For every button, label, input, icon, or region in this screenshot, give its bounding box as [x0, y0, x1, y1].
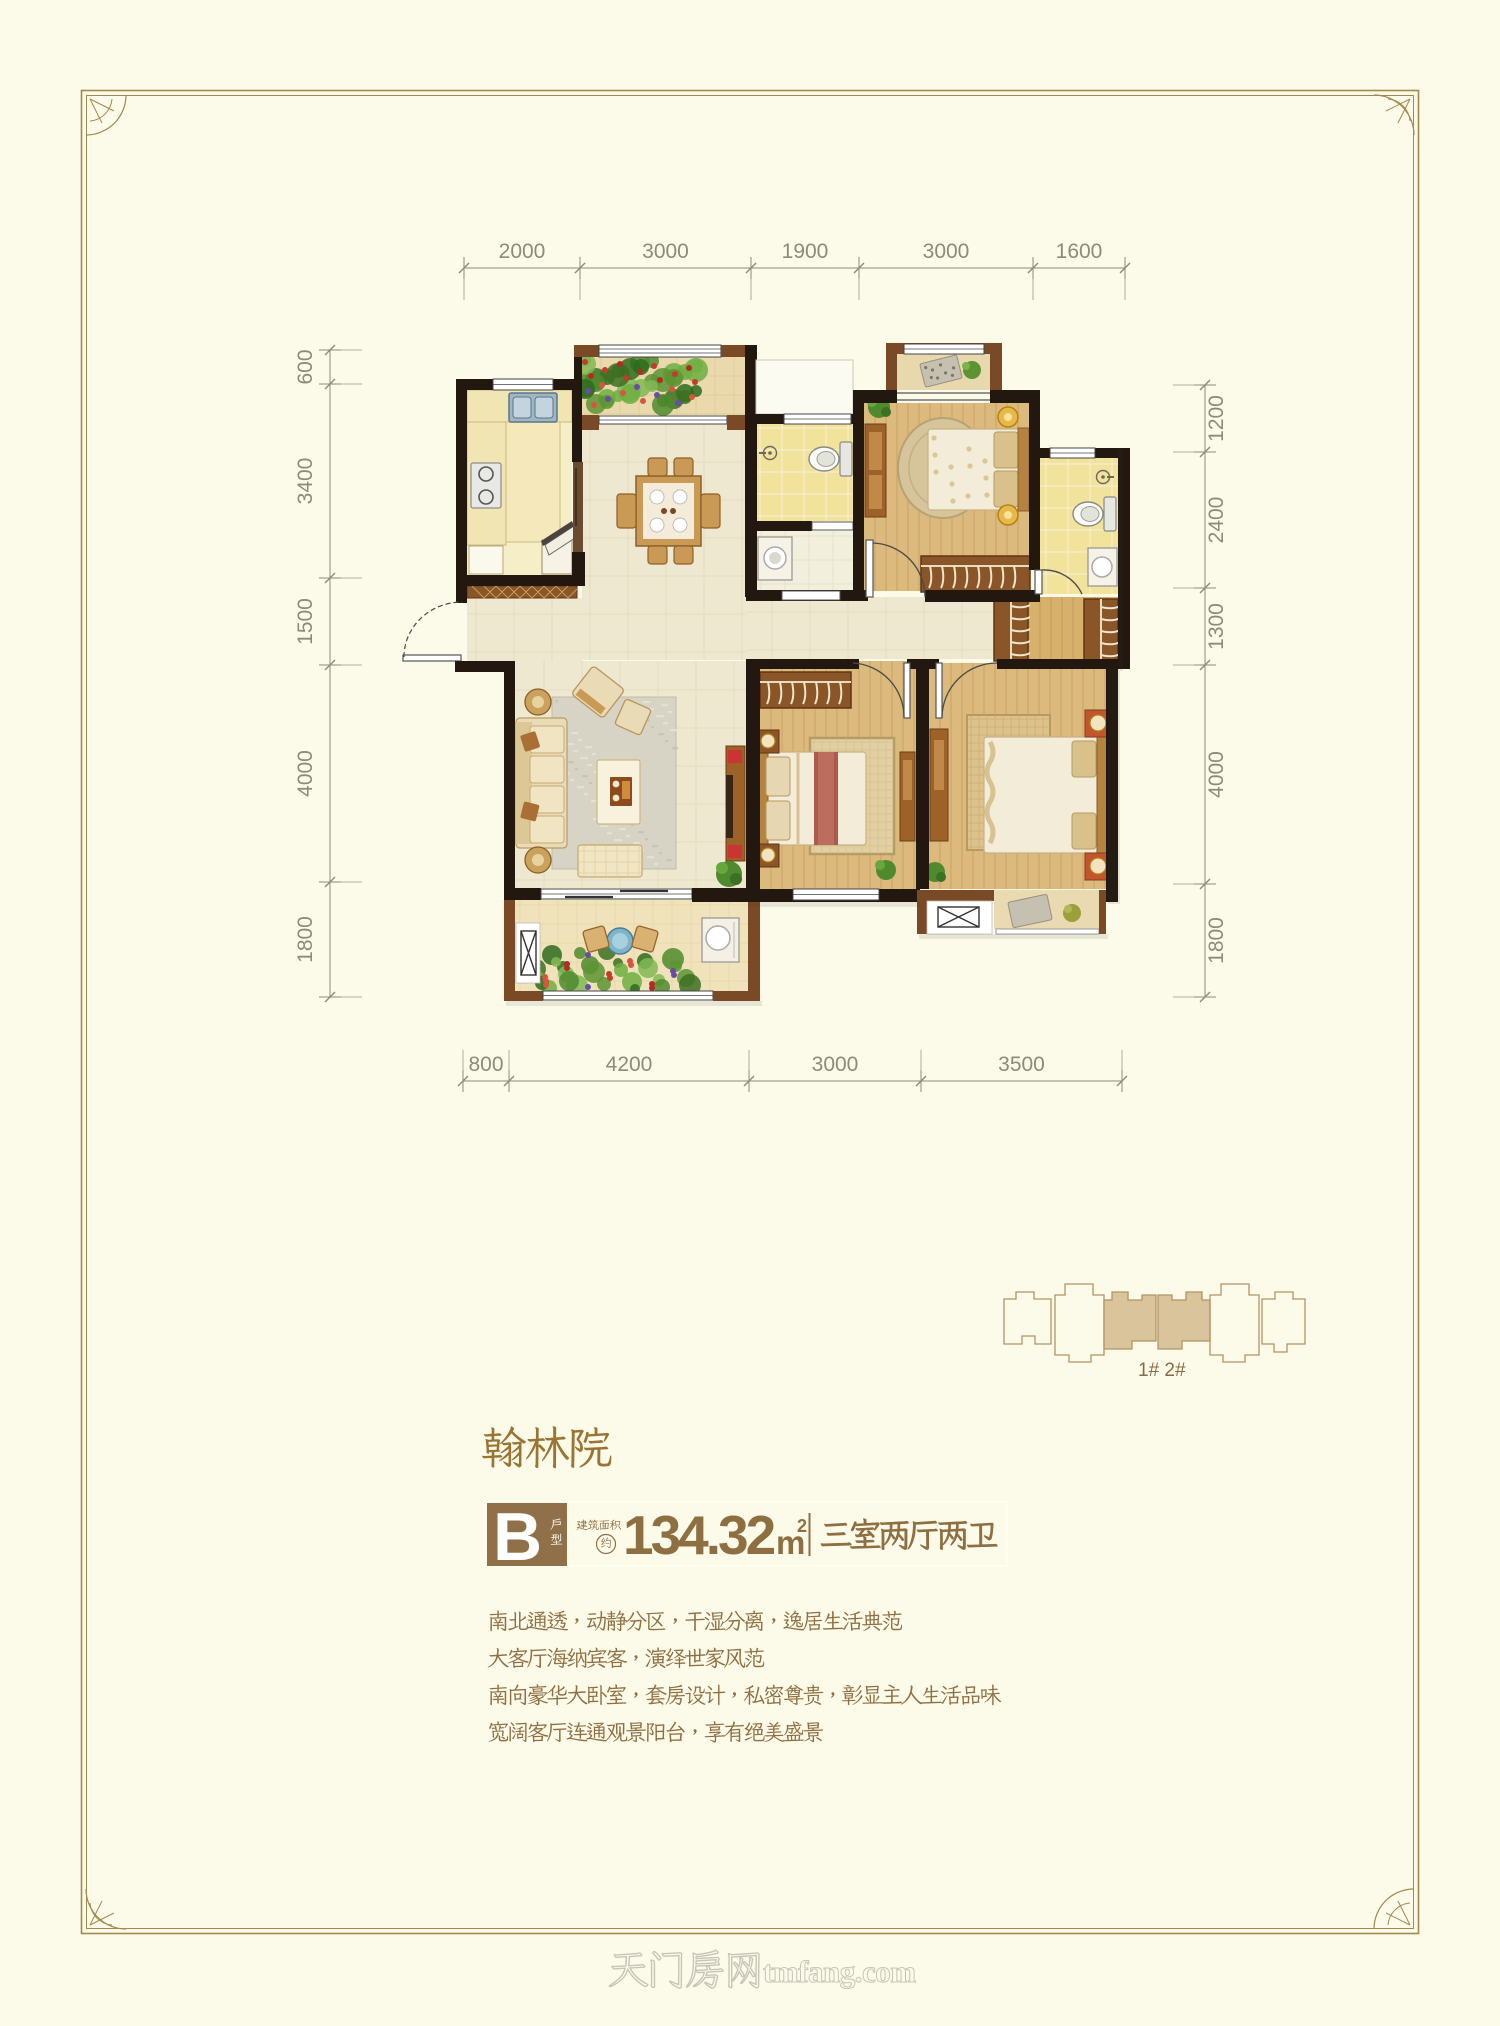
svg-text:1800: 1800	[1205, 917, 1228, 964]
svg-text:600: 600	[294, 349, 317, 384]
svg-text:1300: 1300	[1205, 603, 1228, 650]
svg-text:1900: 1900	[782, 240, 829, 263]
svg-text:800: 800	[468, 1053, 503, 1076]
svg-text:1500: 1500	[294, 598, 317, 645]
svg-text:1600: 1600	[1056, 240, 1103, 263]
svg-text:4000: 4000	[294, 750, 317, 797]
svg-text:1# 2#: 1# 2#	[1138, 1360, 1186, 1381]
svg-text:3500: 3500	[998, 1053, 1045, 1076]
svg-text:1800: 1800	[294, 916, 317, 963]
svg-text:tmfang.com: tmfang.com	[763, 1954, 916, 1989]
svg-text:134.32: 134.32	[623, 1504, 775, 1566]
svg-text:3000: 3000	[642, 240, 689, 263]
svg-text:2: 2	[797, 1516, 807, 1536]
svg-text:3000: 3000	[812, 1053, 859, 1076]
svg-text:3400: 3400	[294, 458, 317, 505]
svg-text:B: B	[493, 1499, 542, 1575]
svg-text:3000: 3000	[923, 240, 970, 263]
svg-text:2000: 2000	[499, 240, 546, 263]
svg-text:2400: 2400	[1205, 497, 1228, 544]
svg-text:1200: 1200	[1205, 395, 1228, 442]
svg-text:4200: 4200	[606, 1053, 653, 1076]
svg-text:4000: 4000	[1205, 751, 1228, 798]
